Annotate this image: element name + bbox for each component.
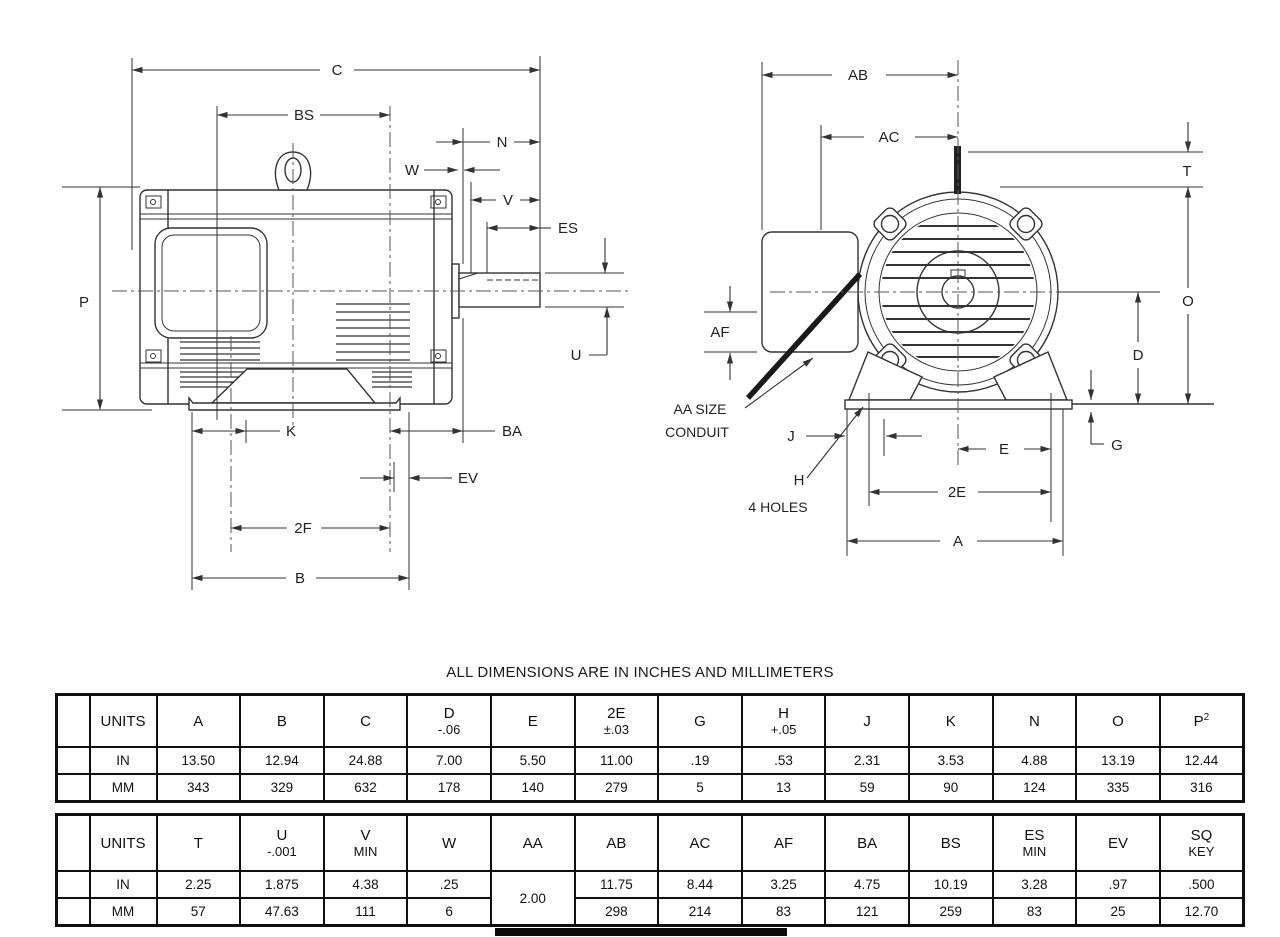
dim-label-u: U xyxy=(571,347,582,364)
value-cell: 111 xyxy=(324,898,408,926)
value-cell: 2.00 xyxy=(491,871,575,926)
table-row-in: IN13.5012.9424.887.005.5011.00.19.532.31… xyxy=(57,747,1244,774)
value-cell: 5 xyxy=(658,774,742,802)
value-cell: 11.75 xyxy=(575,871,659,898)
value-cell: 4.75 xyxy=(825,871,909,898)
spacer-cell xyxy=(57,747,90,774)
value-cell: 279 xyxy=(575,774,659,802)
value-cell: 214 xyxy=(658,898,742,926)
header-cell-2e: 2E±.03 xyxy=(575,695,659,748)
spacer-cell xyxy=(57,871,90,898)
header-cell-bs: BS xyxy=(909,815,993,872)
dimension-table-primary-wrap: UNITSABCD-.06E2E±.03GH+.05JKNOP2IN13.501… xyxy=(55,693,1245,803)
header-cell-ac: AC xyxy=(658,815,742,872)
value-cell: 2.25 xyxy=(157,871,241,898)
value-cell: 25 xyxy=(1076,898,1160,926)
dim-label-e: E xyxy=(999,441,1009,458)
value-cell: 3.28 xyxy=(993,871,1077,898)
header-cell-e: E xyxy=(491,695,575,748)
spacer-cell xyxy=(57,774,90,802)
value-cell: 11.00 xyxy=(575,747,659,774)
value-cell: 8.44 xyxy=(658,871,742,898)
value-cell: 632 xyxy=(324,774,408,802)
header-cell-j: J xyxy=(825,695,909,748)
dim-label-ac: AC xyxy=(879,129,900,146)
dim-label-d: D xyxy=(1133,347,1144,364)
header-cell-es: ESMIN xyxy=(993,815,1077,872)
value-cell: .500 xyxy=(1160,871,1244,898)
header-cell-v: VMIN xyxy=(324,815,408,872)
note-aa-size-line1: AA SIZE xyxy=(674,401,727,417)
value-cell: 259 xyxy=(909,898,993,926)
table-row-mm: MM5747.63111629821483121259832512.70 xyxy=(57,898,1244,926)
value-cell: 12.44 xyxy=(1160,747,1244,774)
value-cell: 5.50 xyxy=(491,747,575,774)
unit-cell: IN xyxy=(90,747,157,774)
header-cell-k: K xyxy=(909,695,993,748)
dim-label-bs: BS xyxy=(294,107,314,124)
value-cell: 124 xyxy=(993,774,1077,802)
spacer-cell xyxy=(57,815,90,872)
table-dimensions-secondary: UNITSTU-.001VMINWAAABACAFBABSESMINEVSQKE… xyxy=(55,813,1245,927)
value-cell: 1.875 xyxy=(240,871,324,898)
partial-next-element-bar xyxy=(495,928,787,936)
header-cell-t: T xyxy=(157,815,241,872)
table-row-in: IN2.251.8754.38.252.0011.758.443.254.751… xyxy=(57,871,1244,898)
dim-label-p: P xyxy=(79,294,89,311)
value-cell: 2.31 xyxy=(825,747,909,774)
value-cell: .25 xyxy=(407,871,491,898)
header-cell-units: UNITS xyxy=(90,815,157,872)
motor-side-view: C BS N W V ES P U K BA EV 2F B xyxy=(62,56,632,590)
value-cell: 13 xyxy=(742,774,826,802)
value-cell: 140 xyxy=(491,774,575,802)
value-cell: 13.50 xyxy=(157,747,241,774)
unit-cell: MM xyxy=(90,774,157,802)
header-cell-b: B xyxy=(240,695,324,748)
value-cell: 335 xyxy=(1076,774,1160,802)
dim-label-ba: BA xyxy=(502,423,522,440)
value-cell: 316 xyxy=(1160,774,1244,802)
value-cell: 121 xyxy=(825,898,909,926)
header-cell-ev: EV xyxy=(1076,815,1160,872)
value-cell: 3.53 xyxy=(909,747,993,774)
dim-label-o: O xyxy=(1182,293,1194,310)
header-cell-c: C xyxy=(324,695,408,748)
dim-label-h: H xyxy=(794,472,805,489)
spacer-cell xyxy=(57,695,90,748)
value-cell: 178 xyxy=(407,774,491,802)
value-cell: 10.19 xyxy=(909,871,993,898)
dim-label-b: B xyxy=(295,570,305,587)
header-cell-p: P2 xyxy=(1160,695,1244,748)
dim-label-a: A xyxy=(953,533,963,550)
unit-cell: IN xyxy=(90,871,157,898)
motor-dimension-sheet: C BS N W V ES P U K BA EV 2F B xyxy=(0,0,1280,937)
dim-label-c: C xyxy=(332,62,343,79)
note-4-holes: 4 HOLES xyxy=(748,499,807,515)
conduit-box-side xyxy=(155,228,267,338)
value-cell: 3.25 xyxy=(742,871,826,898)
dim-label-ab: AB xyxy=(848,67,868,84)
value-cell: 13.19 xyxy=(1076,747,1160,774)
value-cell: .19 xyxy=(658,747,742,774)
header-cell-u: U-.001 xyxy=(240,815,324,872)
dim-label-ev: EV xyxy=(458,470,478,487)
dim-label-2f: 2F xyxy=(294,520,312,537)
dim-label-2e: 2E xyxy=(948,484,966,501)
value-cell: 47.63 xyxy=(240,898,324,926)
value-cell: 343 xyxy=(157,774,241,802)
header-cell-o: O xyxy=(1076,695,1160,748)
header-cell-n: N xyxy=(993,695,1077,748)
value-cell: .97 xyxy=(1076,871,1160,898)
dim-label-es: ES xyxy=(558,220,578,237)
header-cell-a: A xyxy=(157,695,241,748)
note-aa-size-line2: CONDUIT xyxy=(665,424,729,440)
value-cell: 83 xyxy=(993,898,1077,926)
dim-label-v: V xyxy=(503,192,513,209)
header-cell-g: G xyxy=(658,695,742,748)
value-cell: 329 xyxy=(240,774,324,802)
motor-front-view: AB AC T O D G E 2E A J H AF AA SIZE COND… xyxy=(665,60,1214,556)
dim-label-k: K xyxy=(286,423,296,440)
header-cell-aa: AA xyxy=(491,815,575,872)
header-cell-ab: AB xyxy=(575,815,659,872)
value-cell: .53 xyxy=(742,747,826,774)
value-cell: 7.00 xyxy=(407,747,491,774)
table-row-mm: MM3433296321781402795135990124335316 xyxy=(57,774,1244,802)
header-cell-sq: SQKEY xyxy=(1160,815,1244,872)
value-cell: 12.94 xyxy=(240,747,324,774)
value-cell: 24.88 xyxy=(324,747,408,774)
dim-label-t: T xyxy=(1182,163,1191,180)
value-cell: 298 xyxy=(575,898,659,926)
dimension-table-secondary-wrap: UNITSTU-.001VMINWAAABACAFBABSESMINEVSQKE… xyxy=(55,813,1245,927)
header-cell-w: W xyxy=(407,815,491,872)
value-cell: 6 xyxy=(407,898,491,926)
dim-label-j: J xyxy=(787,428,795,445)
dim-label-af: AF xyxy=(710,324,729,341)
header-cell-units: UNITS xyxy=(90,695,157,748)
conduit-box-front xyxy=(748,232,860,398)
value-cell: 12.70 xyxy=(1160,898,1244,926)
value-cell: 90 xyxy=(909,774,993,802)
motor-outline-drawings: C BS N W V ES P U K BA EV 2F B xyxy=(0,0,1280,640)
header-cell-af: AF xyxy=(742,815,826,872)
spacer-cell xyxy=(57,898,90,926)
dim-label-w: W xyxy=(405,162,420,179)
value-cell: 4.88 xyxy=(993,747,1077,774)
dimensions-note: ALL DIMENSIONS ARE IN INCHES AND MILLIME… xyxy=(0,664,1280,681)
header-cell-d: D-.06 xyxy=(407,695,491,748)
header-cell-ba: BA xyxy=(825,815,909,872)
dim-label-g: G xyxy=(1111,437,1123,454)
dim-label-n: N xyxy=(497,134,508,151)
value-cell: 59 xyxy=(825,774,909,802)
value-cell: 57 xyxy=(157,898,241,926)
header-cell-h: H+.05 xyxy=(742,695,826,748)
table-dimensions-primary: UNITSABCD-.06E2E±.03GH+.05JKNOP2IN13.501… xyxy=(55,693,1245,803)
value-cell: 4.38 xyxy=(324,871,408,898)
value-cell: 83 xyxy=(742,898,826,926)
unit-cell: MM xyxy=(90,898,157,926)
